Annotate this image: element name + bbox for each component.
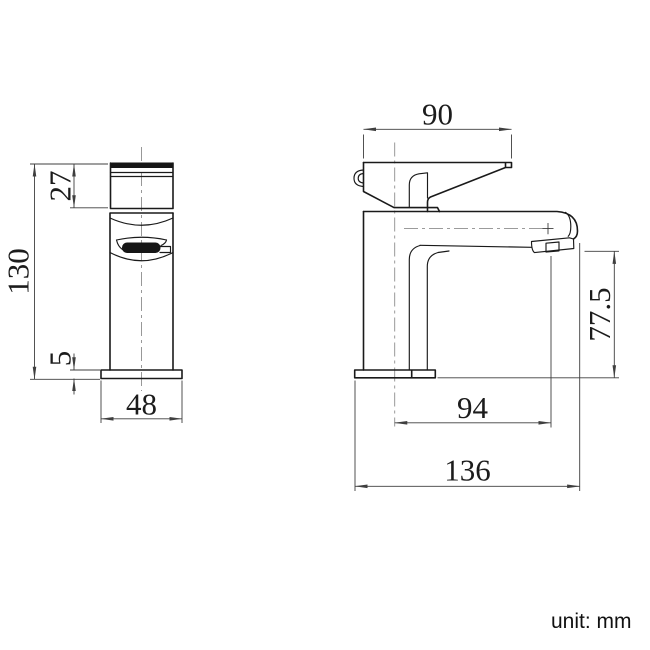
dim-label-spout-reach: 94 [457,390,489,425]
handle-back-button-side [354,170,364,187]
dim-base-thickness: 5 [43,351,101,395]
aerator-hook-front [160,247,171,253]
handle-neck-side [409,173,427,208]
spout-centerline-cross [543,223,554,234]
aerator-block-side [532,238,574,253]
dim-label-overall-depth: 136 [444,453,491,488]
dim-label-overall-height: 130 [1,248,36,295]
aerator-outlet-front [123,243,161,253]
dim-label-spout-outlet-height: 77.5 [582,287,617,341]
dim-label-handle-height: 27 [43,171,78,202]
column-inner-edge-1 [409,246,420,371]
faucet-dimension-drawing: 130 27 5 48 [0,0,650,650]
dim-handle-length: 90 [364,97,512,159]
dim-label-handle-length: 90 [422,97,453,132]
front-view [101,147,182,391]
dim-label-base-thickness: 5 [43,351,78,367]
spout-top-outline-side [364,212,578,240]
handle-top-cap-front [111,163,174,168]
dim-base-width: 48 [101,381,182,424]
dim-handle-height: 27 [43,164,109,208]
dim-overall-depth: 136 [355,243,580,491]
unit-note: unit: mm [551,610,632,633]
side-view [354,143,578,427]
handle-lever-side [364,163,512,212]
technical-drawing-page: 130 27 5 48 [0,0,650,650]
dim-label-base-width: 48 [126,387,157,422]
column-inner-edge-2 [427,251,449,370]
dim-spout-outlet-height: 77.5 [438,251,620,377]
dim-spout-reach: 94 [395,256,551,428]
ext-line [364,135,512,159]
spout-underside-side [420,245,532,247]
front-view-dimensions: 130 27 5 48 [1,164,183,423]
